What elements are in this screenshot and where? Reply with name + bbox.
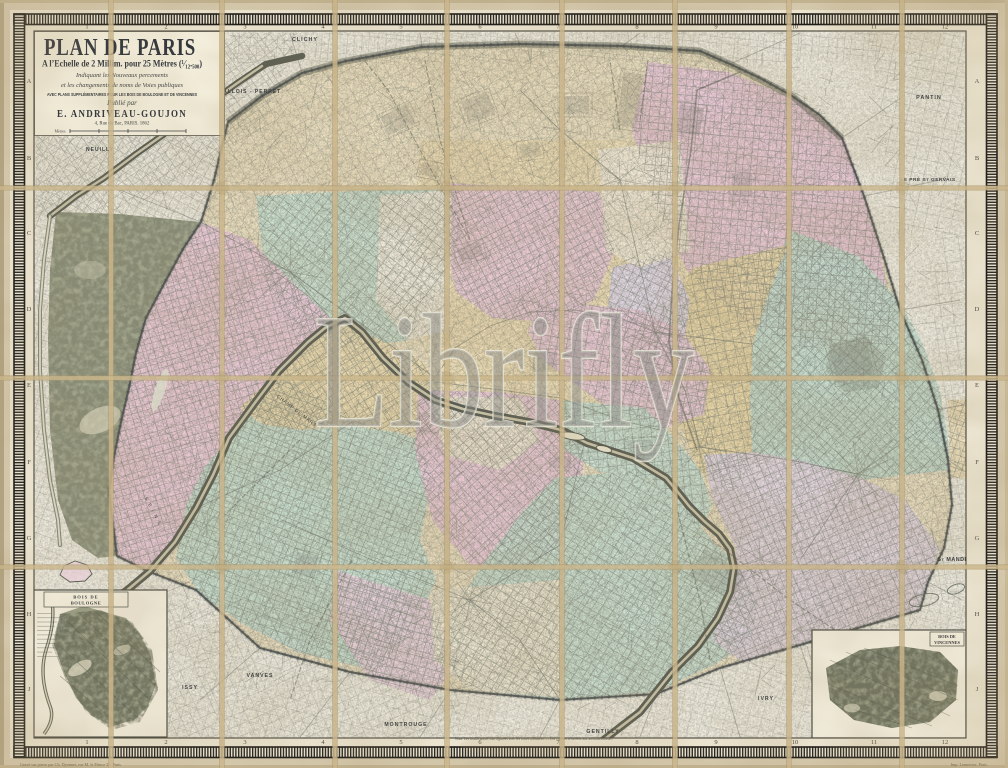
svg-text:Librifly: Librifly xyxy=(314,282,694,462)
